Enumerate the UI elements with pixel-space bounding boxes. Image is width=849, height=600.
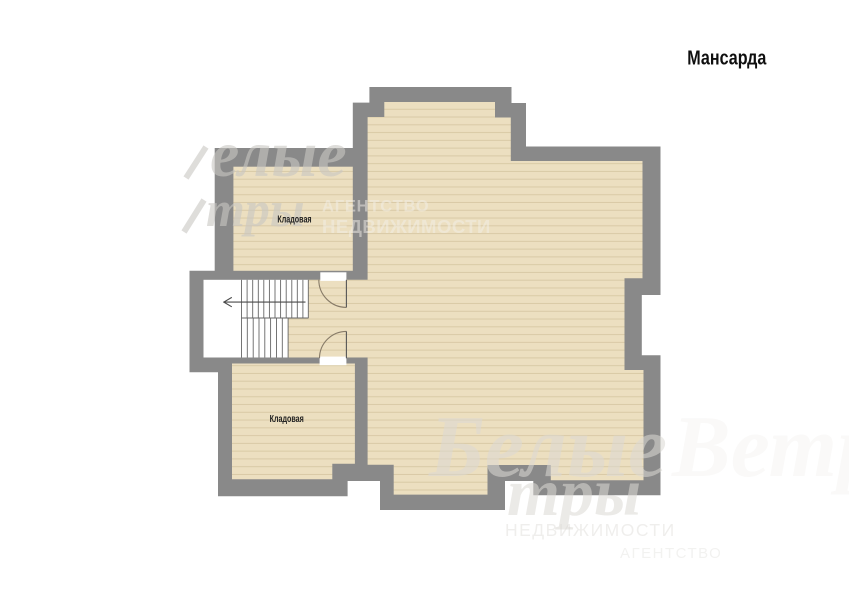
svg-text:Мансарда: Мансарда [687,46,767,69]
svg-text:Кладовая: Кладовая [277,213,311,225]
svg-text:Кладовая: Кладовая [270,413,304,425]
svg-text:тры: тры [206,181,305,237]
svg-text:АГЕНТСТВО: АГЕНТСТВО [620,545,722,562]
svg-text:Ветры: Ветры [671,399,849,496]
svg-text:НЕДВИЖИМОСТИ: НЕДВИЖИМОСТИ [322,216,491,237]
svg-text:АГЕНТСТВО: АГЕНТСТВО [322,198,429,216]
svg-text:НЕДВИЖИМОСТИ: НЕДВИЖИМОСТИ [505,520,676,540]
svg-text:тры: тры [507,454,641,530]
